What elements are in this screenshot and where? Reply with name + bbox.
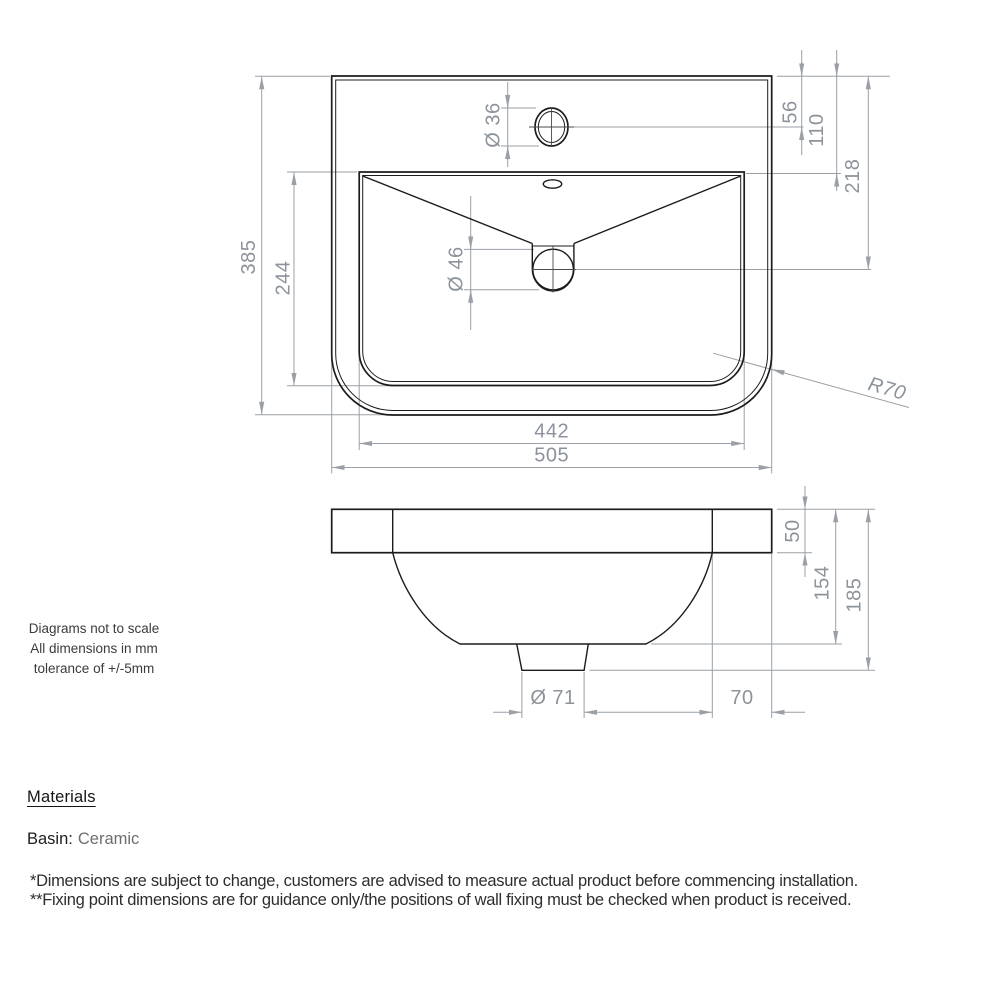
waste-outlet-outline xyxy=(517,644,589,670)
dim-top-to-tap-label: 56 xyxy=(780,100,802,123)
dim-top-to-basin-label: 110 xyxy=(806,113,828,146)
side-view-geometry xyxy=(332,509,772,670)
dimension-labels: 385 244 Ø 36 Ø 46 56 110 218 442 505 R70… xyxy=(238,100,908,709)
dim-bowl-depth-label: 154 xyxy=(812,566,834,601)
dim-corner-radius-label: R70 xyxy=(866,373,909,405)
materials-basin-row: Basin:Ceramic xyxy=(27,830,139,849)
dim-basin-depth-label: 244 xyxy=(273,261,295,296)
footnote-fixing-points: **Fixing point dimensions are for guidan… xyxy=(30,891,970,910)
basin-technical-drawing-page: 385 244 Ø 36 Ø 46 56 110 218 442 505 R70… xyxy=(0,0,1000,1000)
dim-overall-depth-label: 385 xyxy=(238,240,260,275)
footnote-dimensions: *Dimensions are subject to change, custo… xyxy=(30,872,970,891)
dim-top-to-waste-label: 218 xyxy=(842,159,864,194)
dim-waste-dia-label: Ø 46 xyxy=(446,246,468,291)
note-line: tolerance of +/-5mm xyxy=(14,659,174,679)
overflow-slot-outline xyxy=(543,180,561,188)
footnotes: *Dimensions are subject to change, custo… xyxy=(30,872,970,910)
note-line: Diagrams not to scale xyxy=(14,619,174,639)
materials-basin-value: Ceramic xyxy=(78,830,139,848)
dimension-lines xyxy=(255,50,909,718)
dim-rim-height-label: 50 xyxy=(782,519,804,542)
dim-basin-width-label: 442 xyxy=(534,421,569,443)
dim-overall-height-label: 185 xyxy=(844,578,866,613)
materials-basin-label: Basin: xyxy=(27,830,73,848)
drawing-notes: Diagrams not to scale All dimensions in … xyxy=(14,619,174,679)
materials-heading: Materials xyxy=(27,788,96,806)
dim-back-ledge-label: 70 xyxy=(730,687,753,709)
materials-section: Materials xyxy=(27,788,96,807)
dim-tap-hole-dia-label: Ø 36 xyxy=(483,102,505,147)
dim-waste-outlet-dia-label: Ø 71 xyxy=(530,687,575,709)
note-line: All dimensions in mm xyxy=(14,639,174,659)
dim-overall-width-label: 505 xyxy=(534,445,569,467)
